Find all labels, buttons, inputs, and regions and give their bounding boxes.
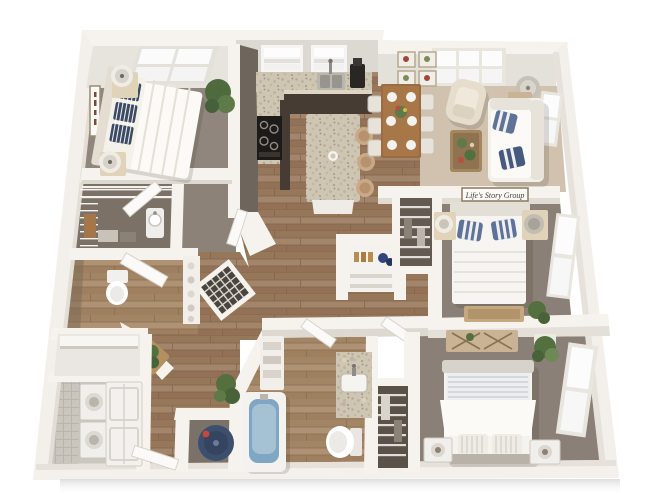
svg-text:Life's Story Group: Life's Story Group: [465, 191, 525, 200]
